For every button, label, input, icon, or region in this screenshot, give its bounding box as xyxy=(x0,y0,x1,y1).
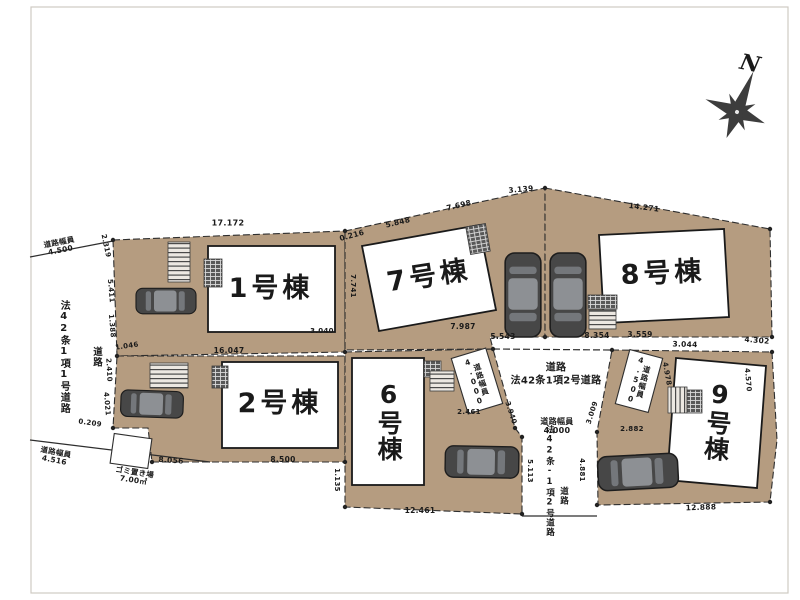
building-2 xyxy=(222,362,338,448)
lot2-entrance-hatch xyxy=(212,366,228,388)
lot9-stairs-hatch xyxy=(668,387,687,413)
lot2-stairs-hatch xyxy=(150,363,188,388)
building-9 xyxy=(667,358,766,488)
compass-icon xyxy=(695,58,781,149)
garbage-area-box xyxy=(110,434,152,469)
lot8-entrance-hatch xyxy=(588,295,617,309)
lot9-entrance-hatch xyxy=(687,390,702,413)
car-icon xyxy=(136,288,196,314)
lot1-stairs-hatch xyxy=(168,242,190,282)
building-6 xyxy=(352,358,424,485)
plan-canvas xyxy=(0,0,800,600)
central-road-top-edge xyxy=(493,349,612,350)
building-8 xyxy=(599,229,729,323)
lot8-stairs-hatch xyxy=(589,310,616,329)
car-icon xyxy=(505,253,541,337)
car-icon xyxy=(120,390,183,419)
car-icon xyxy=(550,253,586,337)
lot7-entrance-hatch xyxy=(466,223,491,254)
lot6-stairs-hatch xyxy=(430,371,454,391)
lot1-entrance-hatch xyxy=(204,259,222,287)
car-icon xyxy=(445,446,519,479)
building-1 xyxy=(208,246,335,332)
car-icon xyxy=(597,453,679,491)
left-road-top-edge xyxy=(30,241,113,257)
site-plan: 1号棟2号棟6号棟7号棟8号棟9号棟N道路幅員 4.500法42条1項1号道路道… xyxy=(0,0,800,600)
